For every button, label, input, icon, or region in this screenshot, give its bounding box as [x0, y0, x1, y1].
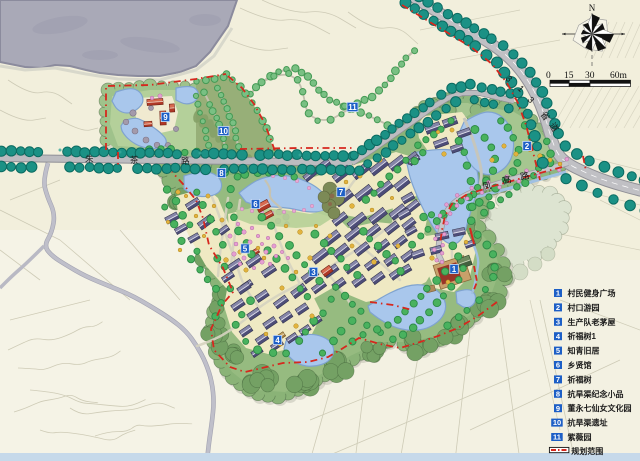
svg-text:8: 8	[219, 169, 224, 178]
svg-text:祈福树1: 祈福树1	[568, 331, 597, 341]
svg-text:60m: 60m	[610, 71, 628, 81]
svg-text:30: 30	[585, 71, 595, 81]
svg-text:4: 4	[275, 336, 280, 345]
svg-text:10: 10	[553, 418, 561, 427]
svg-text:规划范围: 规划范围	[571, 446, 603, 456]
svg-text:5: 5	[556, 346, 560, 355]
svg-text:0: 0	[546, 71, 551, 81]
svg-text:2: 2	[525, 142, 530, 151]
svg-text:7: 7	[339, 188, 344, 197]
svg-text:11: 11	[348, 103, 357, 112]
svg-text:8: 8	[556, 389, 560, 398]
svg-text:11: 11	[553, 433, 561, 442]
svg-text:1: 1	[452, 265, 457, 274]
svg-text:6: 6	[556, 361, 560, 370]
svg-text:7: 7	[556, 375, 560, 384]
svg-text:董永七仙女文化园: 董永七仙女文化园	[568, 403, 632, 413]
svg-text:知青旧居: 知青旧居	[568, 346, 600, 356]
svg-text:生产队老茅屋: 生产队老茅屋	[568, 317, 616, 327]
svg-text:村口游园: 村口游园	[568, 302, 600, 312]
svg-text:抗旱渠遗址: 抗旱渠遗址	[568, 418, 608, 428]
svg-text:茶: 茶	[130, 155, 139, 165]
svg-text:2: 2	[556, 303, 560, 312]
svg-text:9: 9	[163, 113, 168, 122]
svg-text:朱: 朱	[85, 154, 94, 164]
svg-text:村民健身广场: 村民健身广场	[568, 288, 616, 298]
svg-text:15: 15	[564, 71, 574, 81]
svg-text:抗旱渠纪念小品: 抗旱渠纪念小品	[568, 389, 624, 399]
svg-text:1: 1	[556, 289, 560, 298]
svg-text:N: N	[589, 3, 596, 13]
svg-text:乡贤馆: 乡贤馆	[568, 360, 592, 370]
svg-text:10: 10	[219, 127, 228, 136]
svg-text:6: 6	[253, 200, 258, 209]
svg-text:紫薇园: 紫薇园	[568, 432, 592, 442]
svg-text:9: 9	[556, 404, 560, 413]
svg-text:5: 5	[243, 244, 248, 253]
svg-text:祈福树: 祈福树	[568, 374, 592, 384]
svg-text:3: 3	[556, 317, 560, 326]
svg-text:路: 路	[181, 156, 190, 166]
svg-text:3: 3	[311, 268, 316, 277]
